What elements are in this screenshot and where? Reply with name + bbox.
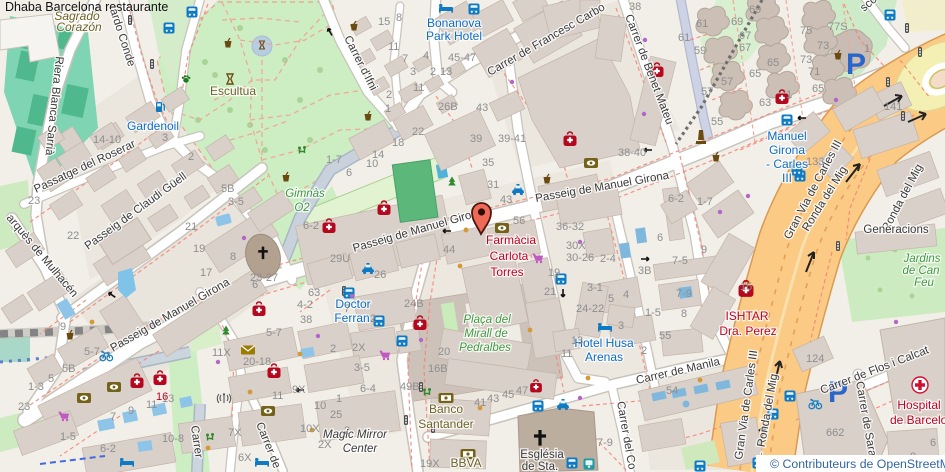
svg-text:19: 19 [548, 267, 560, 279]
svg-text:36-32: 36-32 [556, 221, 584, 233]
svg-text:43: 43 [487, 393, 499, 405]
svg-text:133: 133 [806, 156, 824, 168]
svg-text:71: 71 [808, 66, 820, 78]
svg-text:31: 31 [487, 179, 499, 191]
svg-text:1: 1 [385, 103, 391, 115]
svg-text:1-5: 1-5 [645, 307, 661, 319]
svg-text:18: 18 [392, 137, 404, 149]
svg-text:47: 47 [516, 385, 528, 397]
svg-text:61: 61 [696, 18, 708, 30]
svg-text:67: 67 [739, 30, 751, 42]
svg-text:de Barcelon: de Barcelon [890, 413, 945, 427]
svg-text:ISHTAR: ISHTAR [725, 309, 768, 323]
svg-text:Santander: Santander [418, 417, 473, 431]
svg-text:BBVA: BBVA [450, 456, 481, 470]
svg-text:11: 11 [561, 348, 572, 360]
svg-text:13: 13 [440, 66, 452, 78]
svg-text:56: 56 [513, 215, 525, 227]
svg-text:3-5: 3-5 [228, 196, 244, 208]
svg-text:Doctor: Doctor [335, 297, 370, 311]
svg-text:6: 6 [657, 232, 663, 244]
svg-text:17: 17 [200, 267, 212, 279]
svg-text:Església: Església [520, 449, 564, 461]
svg-text:54: 54 [666, 385, 678, 397]
svg-text:13: 13 [571, 335, 583, 347]
svg-text:35: 35 [482, 157, 494, 169]
svg-text:Banco: Banco [429, 402, 463, 416]
svg-text:10-8: 10-8 [162, 433, 184, 445]
svg-text:1: 1 [864, 43, 870, 55]
svg-text:55: 55 [711, 116, 723, 128]
svg-text:5B: 5B [62, 363, 75, 375]
svg-text:15: 15 [378, 16, 390, 28]
svg-text:5: 5 [608, 293, 614, 305]
svg-text:Bonanova: Bonanova [427, 16, 481, 30]
svg-text:21: 21 [544, 286, 556, 298]
svg-text:2: 2 [386, 89, 392, 101]
svg-text:O2: O2 [294, 202, 310, 214]
svg-text:75: 75 [800, 25, 812, 37]
svg-text:3-5: 3-5 [354, 362, 370, 374]
svg-text:11: 11 [413, 82, 424, 94]
svg-text:2: 2 [330, 343, 336, 355]
svg-text:3-1: 3-1 [587, 282, 603, 294]
svg-text:Generacions: Generacions [863, 224, 928, 236]
svg-text:22: 22 [67, 230, 79, 242]
svg-text:44: 44 [443, 244, 455, 256]
svg-text:6-2: 6-2 [668, 193, 684, 205]
svg-text:3: 3 [162, 132, 168, 144]
svg-text:13: 13 [162, 393, 174, 405]
svg-text:7: 7 [344, 303, 350, 315]
svg-text:662: 662 [826, 427, 844, 439]
svg-text:7: 7 [402, 53, 408, 65]
svg-text:19X: 19X [420, 458, 440, 470]
svg-text:1-5: 1-5 [60, 431, 76, 443]
svg-text:16B: 16B [428, 363, 448, 375]
svg-text:55: 55 [659, 330, 671, 342]
svg-text:38-40: 38-40 [618, 147, 646, 159]
svg-text:19: 19 [193, 243, 205, 255]
svg-text:7-9: 7-9 [676, 288, 692, 300]
svg-text:38: 38 [300, 314, 312, 326]
svg-text:20: 20 [438, 346, 450, 358]
svg-text:1-7: 1-7 [326, 154, 342, 166]
svg-text:63: 63 [759, 97, 771, 109]
svg-text:Mirall de: Mirall de [464, 328, 507, 340]
svg-text:Magic Mirror: Magic Mirror [323, 429, 388, 441]
svg-text:5: 5 [48, 373, 54, 385]
svg-text:Arenas: Arenas [585, 350, 623, 364]
svg-text:Hotel Husa: Hotel Husa [574, 336, 634, 350]
svg-text:61: 61 [678, 32, 690, 44]
svg-text:7: 7 [110, 411, 116, 423]
svg-text:45-47: 45-47 [448, 52, 476, 64]
svg-text:65: 65 [767, 57, 779, 69]
svg-text:15: 15 [740, 281, 752, 293]
svg-text:© Contributeurs de OpenStreetM: © Contributeurs de OpenStreetMap [770, 457, 945, 471]
svg-text:7-9: 7-9 [597, 437, 613, 449]
svg-text:5-7: 5-7 [84, 346, 100, 358]
svg-text:Plaça del: Plaça del [463, 314, 511, 326]
svg-text:21: 21 [185, 221, 197, 233]
svg-text:65: 65 [812, 83, 824, 95]
svg-text:de Can: de Can [902, 265, 939, 277]
svg-text:39-41: 39-41 [498, 133, 526, 145]
svg-text:5-7: 5-7 [266, 327, 282, 339]
svg-text:11: 11 [146, 399, 157, 411]
svg-text:141: 141 [884, 101, 902, 113]
svg-text:9: 9 [60, 321, 66, 333]
svg-text:6: 6 [346, 167, 352, 179]
svg-text:9X: 9X [292, 384, 306, 396]
svg-text:Dra. Perez: Dra. Perez [719, 324, 776, 338]
svg-text:26: 26 [374, 269, 386, 281]
svg-text:1-3: 1-3 [28, 381, 44, 393]
svg-text:73: 73 [817, 40, 829, 52]
svg-text:6-4: 6-4 [360, 383, 376, 395]
svg-text:6-2: 6-2 [303, 220, 319, 232]
svg-text:43: 43 [500, 194, 512, 206]
svg-text:Manuel: Manuel [767, 129, 806, 143]
svg-text:Corazón: Corazón [56, 20, 102, 34]
svg-text:63: 63 [308, 287, 320, 299]
svg-text:65: 65 [749, 68, 761, 80]
svg-text:III: III [782, 171, 792, 185]
svg-text:4-2: 4-2 [297, 299, 313, 311]
svg-text:4: 4 [423, 50, 429, 62]
svg-text:Hospital: Hospital [897, 398, 940, 412]
svg-text:2: 2 [430, 66, 436, 78]
svg-text:10: 10 [314, 400, 326, 412]
svg-text:Gimnàs: Gimnàs [285, 188, 325, 200]
svg-text:3: 3 [618, 320, 624, 332]
svg-text:25: 25 [330, 409, 342, 421]
svg-text:1: 1 [336, 393, 342, 405]
svg-text:6X: 6X [238, 452, 252, 464]
svg-text:57: 57 [701, 86, 713, 98]
svg-text:Center: Center [343, 443, 379, 455]
svg-text:Pedralbes: Pedralbes [459, 342, 511, 354]
svg-text:10X: 10X [300, 423, 320, 435]
svg-text:124: 124 [806, 353, 824, 365]
svg-text:Torres: Torres [490, 265, 523, 279]
svg-text:2: 2 [188, 151, 194, 163]
svg-text:24B: 24B [404, 298, 424, 310]
svg-text:Jardins: Jardins [902, 253, 940, 265]
svg-text:Ferran: Ferran [334, 311, 369, 325]
svg-text:7X: 7X [228, 427, 242, 439]
svg-text:14-10: 14-10 [93, 134, 121, 146]
svg-text:30-26: 30-26 [566, 252, 594, 264]
svg-text:- Carles: - Carles [766, 157, 808, 171]
svg-text:2-4: 2-4 [600, 253, 616, 265]
svg-text:69: 69 [749, 4, 761, 16]
svg-text:69: 69 [731, 16, 743, 28]
svg-text:24-22: 24-22 [576, 303, 604, 315]
svg-text:30X: 30X [566, 240, 586, 252]
svg-text:11: 11 [272, 390, 283, 402]
svg-text:Farmàcia: Farmàcia [486, 233, 536, 247]
svg-text:8: 8 [396, 12, 402, 24]
svg-text:67: 67 [739, 42, 751, 54]
svg-text:2: 2 [370, 313, 376, 325]
svg-text:11X: 11X [212, 347, 231, 359]
svg-text:45: 45 [502, 389, 514, 401]
svg-text:23: 23 [28, 195, 40, 207]
svg-text:8: 8 [230, 251, 236, 263]
svg-text:39: 39 [470, 133, 482, 145]
svg-text:9: 9 [701, 244, 707, 256]
svg-text:2: 2 [641, 345, 647, 357]
svg-text:11: 11 [388, 41, 399, 53]
svg-text:38: 38 [629, 1, 641, 13]
svg-text:23: 23 [18, 401, 30, 413]
svg-text:10: 10 [366, 158, 378, 170]
svg-text:29U: 29U [330, 253, 350, 265]
svg-text:1-7: 1-7 [697, 196, 713, 208]
svg-text:22: 22 [412, 126, 424, 138]
svg-text:2X: 2X [318, 439, 332, 451]
svg-text:4: 4 [623, 289, 629, 301]
svg-text:2X: 2X [352, 342, 366, 354]
svg-text:3: 3 [410, 66, 416, 78]
svg-text:Girona: Girona [769, 143, 805, 157]
svg-text:7-5: 7-5 [672, 255, 688, 267]
svg-text:49B: 49B [400, 381, 420, 393]
svg-text:8: 8 [681, 308, 687, 320]
svg-text:Gardenoil: Gardenoil [127, 119, 179, 133]
svg-text:Escultua: Escultua [210, 84, 256, 98]
svg-text:73: 73 [800, 54, 812, 66]
svg-text:Feu: Feu [914, 277, 934, 289]
svg-text:23-27: 23-27 [250, 272, 278, 284]
svg-text:9: 9 [128, 405, 134, 417]
svg-text:Park Hotel: Park Hotel [426, 29, 482, 43]
svg-text:Carlota: Carlota [490, 249, 529, 263]
svg-text:6: 6 [930, 437, 936, 449]
svg-text:20-18: 20-18 [243, 356, 271, 368]
svg-text:de Sta.: de Sta. [522, 461, 558, 472]
svg-text:41: 41 [474, 397, 486, 409]
svg-text:77S: 77S [828, 21, 848, 33]
svg-text:1: 1 [786, 89, 792, 101]
svg-text:26B: 26B [438, 101, 458, 113]
svg-text:2: 2 [344, 425, 350, 437]
svg-text:57: 57 [721, 76, 733, 88]
svg-text:59: 59 [694, 45, 706, 57]
svg-text:43: 43 [476, 102, 488, 114]
svg-text:5B: 5B [221, 183, 234, 195]
svg-text:6-2: 6-2 [100, 443, 116, 455]
svg-text:3B: 3B [638, 265, 651, 277]
